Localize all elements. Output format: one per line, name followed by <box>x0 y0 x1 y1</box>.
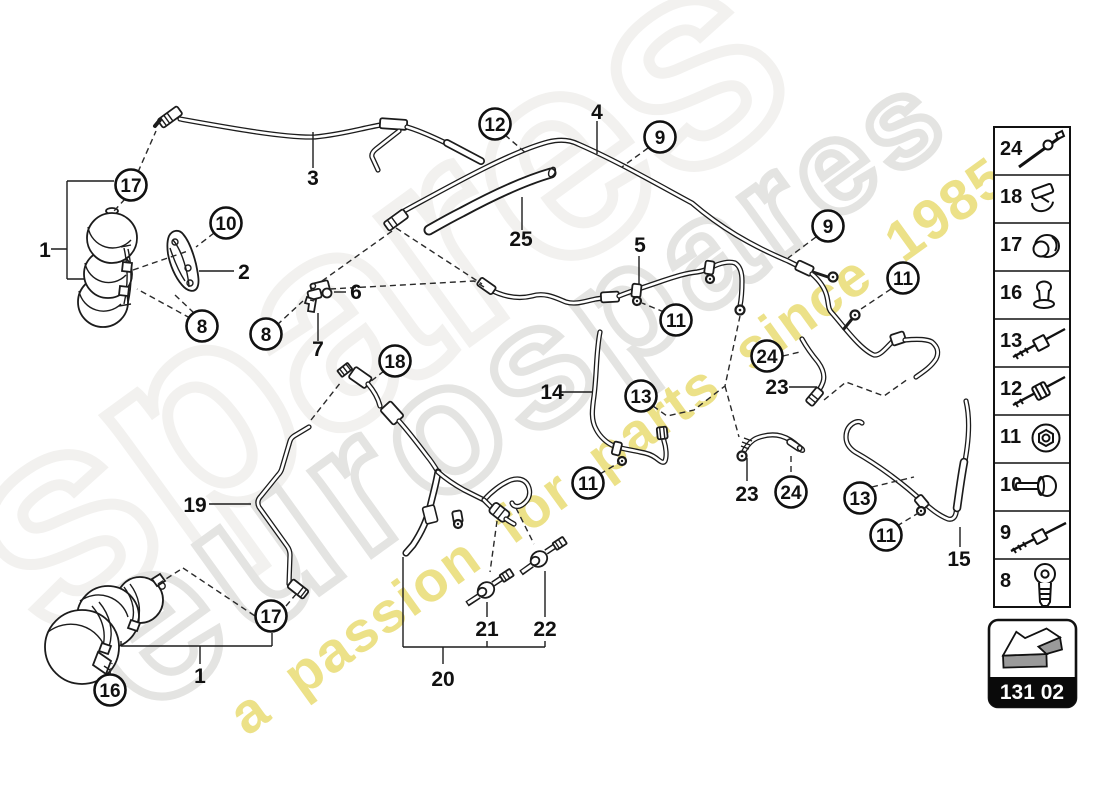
svg-text:8: 8 <box>197 317 208 338</box>
svg-text:8: 8 <box>1000 570 1011 592</box>
svg-text:24: 24 <box>1000 138 1023 160</box>
svg-text:1: 1 <box>39 239 51 262</box>
svg-text:7: 7 <box>312 338 324 361</box>
svg-text:11: 11 <box>666 311 687 332</box>
svg-text:5: 5 <box>634 234 646 257</box>
svg-text:25: 25 <box>509 228 533 251</box>
svg-text:11: 11 <box>578 474 599 495</box>
svg-text:12: 12 <box>1000 378 1022 400</box>
svg-text:11: 11 <box>893 269 914 290</box>
svg-text:131 02: 131 02 <box>1000 681 1064 704</box>
svg-text:13: 13 <box>849 489 870 510</box>
svg-text:3: 3 <box>307 167 319 190</box>
svg-text:11: 11 <box>1000 426 1021 448</box>
svg-text:9: 9 <box>823 217 834 238</box>
svg-text:13: 13 <box>1000 330 1022 352</box>
svg-text:9: 9 <box>1000 522 1011 544</box>
svg-text:17: 17 <box>120 176 141 197</box>
svg-text:20: 20 <box>431 668 454 691</box>
svg-text:18: 18 <box>384 352 405 373</box>
svg-text:19: 19 <box>183 494 206 517</box>
svg-text:15: 15 <box>947 548 971 571</box>
svg-text:17: 17 <box>260 607 281 628</box>
svg-text:2: 2 <box>238 261 250 284</box>
svg-text:10: 10 <box>215 214 236 235</box>
svg-text:24: 24 <box>756 347 778 368</box>
svg-text:22: 22 <box>533 618 556 641</box>
svg-text:6: 6 <box>350 281 362 304</box>
svg-text:11: 11 <box>876 526 897 547</box>
svg-text:9: 9 <box>655 128 666 149</box>
svg-text:12: 12 <box>484 115 505 136</box>
svg-text:23: 23 <box>735 483 758 506</box>
svg-text:16: 16 <box>1000 282 1022 304</box>
svg-text:1: 1 <box>194 665 206 688</box>
svg-text:18: 18 <box>1000 186 1022 208</box>
svg-text:16: 16 <box>99 681 120 702</box>
svg-text:23: 23 <box>765 376 788 399</box>
svg-text:24: 24 <box>780 483 802 504</box>
svg-text:13: 13 <box>630 387 651 408</box>
svg-text:8: 8 <box>261 325 272 346</box>
svg-text:21: 21 <box>475 618 499 641</box>
svg-text:14: 14 <box>540 381 564 404</box>
svg-text:17: 17 <box>1000 234 1022 256</box>
svg-text:4: 4 <box>591 101 603 124</box>
